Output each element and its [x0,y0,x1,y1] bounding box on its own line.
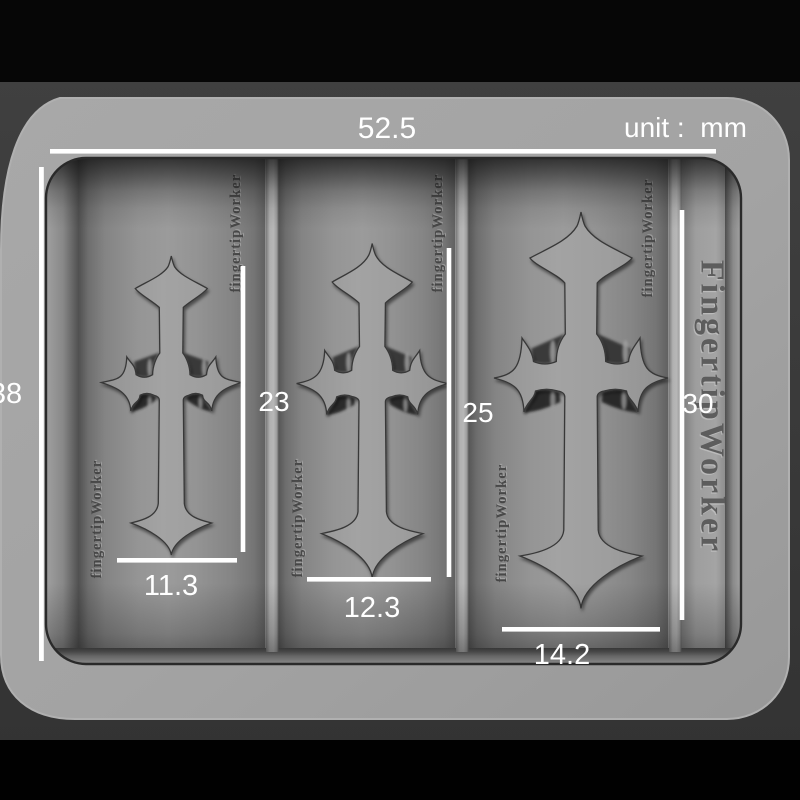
svg-text:38: 38 [0,378,22,410]
svg-text:11.3: 11.3 [144,570,198,602]
svg-text:unit : mm: unit : mm [624,112,747,143]
svg-text:30: 30 [682,388,713,419]
svg-text:52.5: 52.5 [358,112,416,145]
svg-text:25: 25 [462,397,493,428]
svg-text:14.2: 14.2 [534,639,590,671]
svg-text:12.3: 12.3 [344,592,400,624]
svg-text:23: 23 [258,386,289,417]
